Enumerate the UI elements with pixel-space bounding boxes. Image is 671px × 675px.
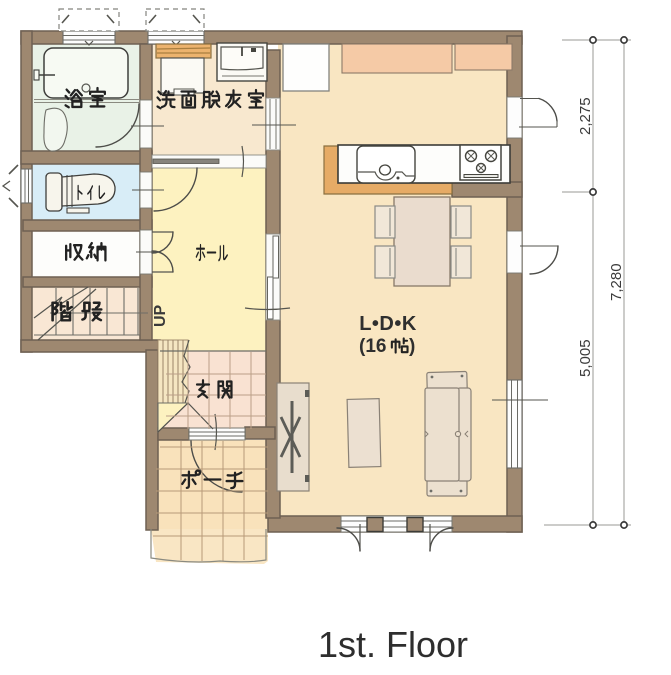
svg-text:7,280: 7,280 xyxy=(608,263,625,301)
svg-text:): ) xyxy=(409,336,415,357)
svg-text:2,275: 2,275 xyxy=(577,97,594,135)
svg-text:L•D•K: L•D•K xyxy=(359,313,417,335)
svg-text:5,005: 5,005 xyxy=(577,339,594,377)
svg-text:1st. Floor: 1st. Floor xyxy=(318,624,468,665)
svg-text:(16: (16 xyxy=(359,336,386,357)
svg-text:UP: UP xyxy=(152,304,169,327)
